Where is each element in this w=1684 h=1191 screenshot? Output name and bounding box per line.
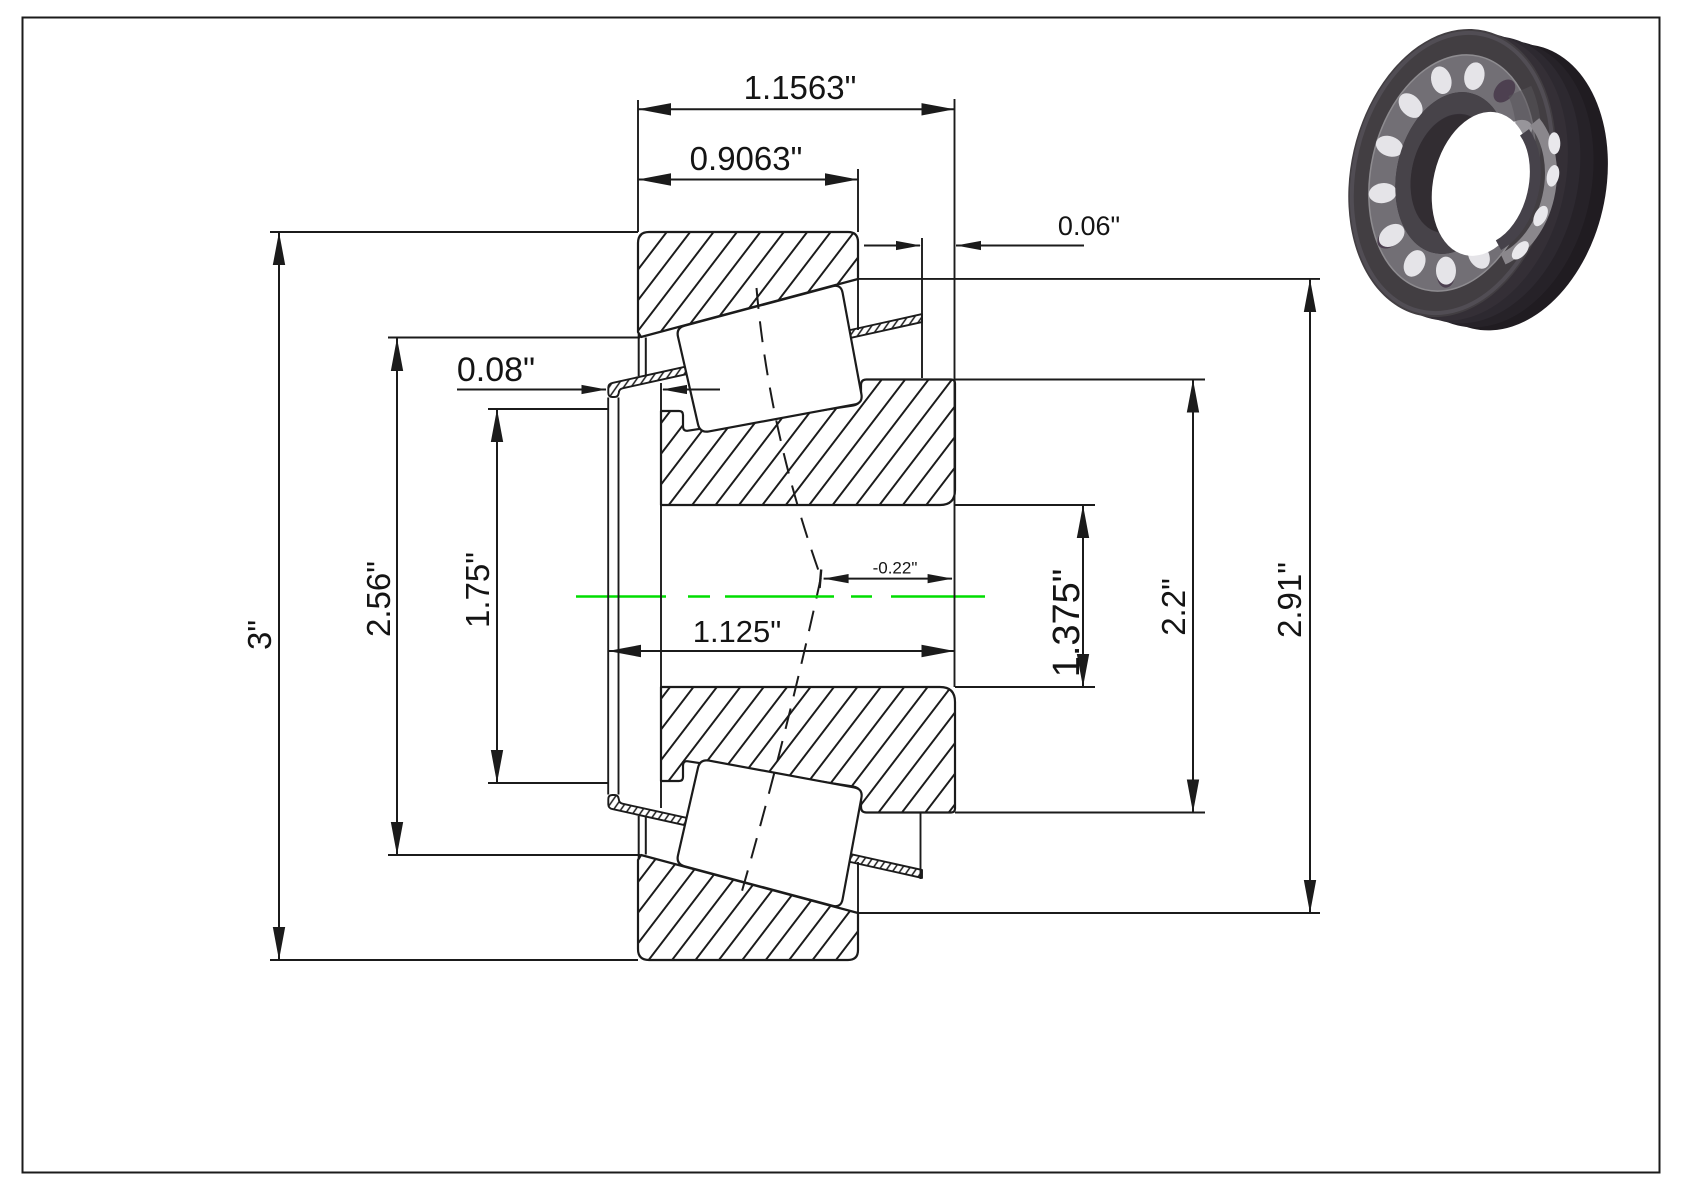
svg-text:2.56": 2.56" <box>360 561 397 637</box>
svg-text:2.2": 2.2" <box>1155 578 1192 636</box>
svg-text:0.06": 0.06" <box>1058 211 1120 241</box>
svg-text:2.91": 2.91" <box>1271 562 1308 638</box>
svg-text:1.1563": 1.1563" <box>744 69 857 106</box>
svg-text:0.9063": 0.9063" <box>690 140 803 177</box>
svg-text:1.125": 1.125" <box>693 614 782 649</box>
svg-text:1.75": 1.75" <box>459 552 496 628</box>
svg-text:1.375": 1.375" <box>1046 569 1088 678</box>
svg-text:3": 3" <box>241 620 278 650</box>
svg-text:-0.22": -0.22" <box>873 559 918 578</box>
svg-text:0.08": 0.08" <box>457 351 535 389</box>
